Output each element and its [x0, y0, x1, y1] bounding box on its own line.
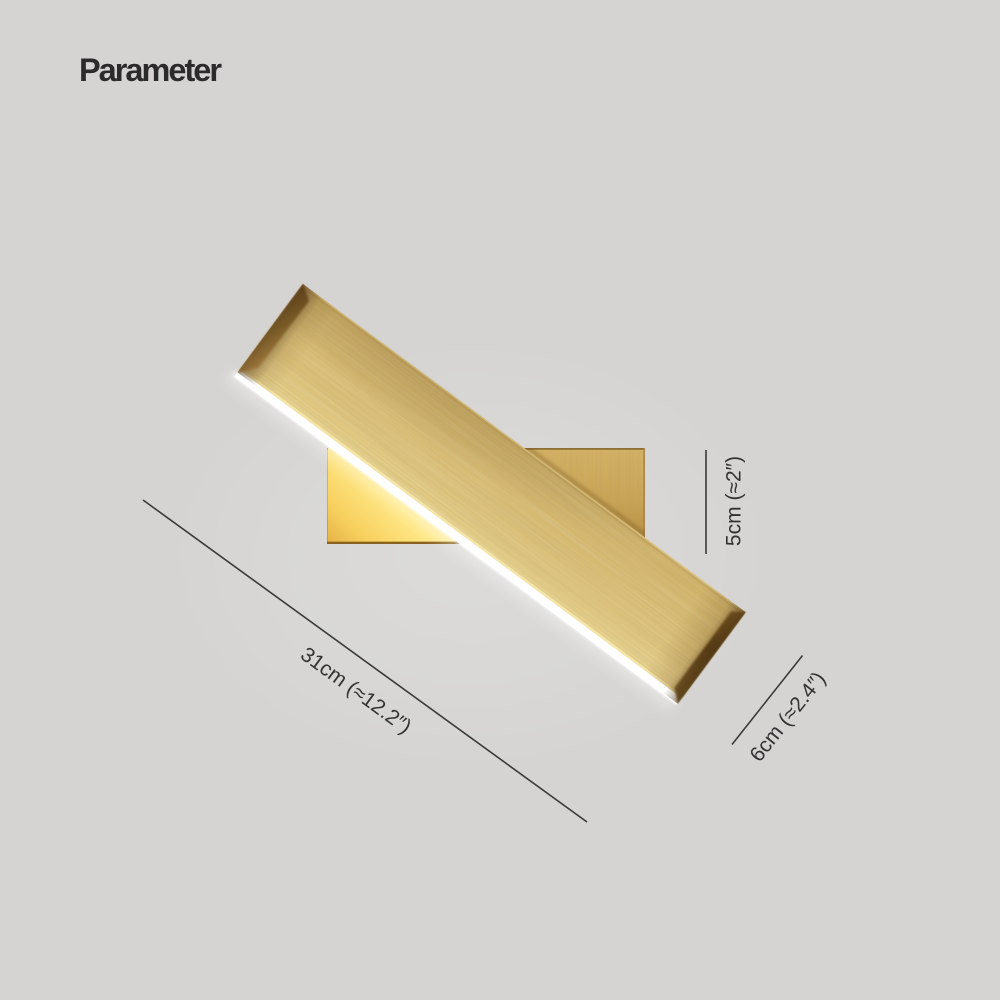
svg-text:5cm (≈2″): 5cm (≈2″) [723, 456, 746, 546]
svg-text:Parameter: Parameter [79, 52, 222, 88]
